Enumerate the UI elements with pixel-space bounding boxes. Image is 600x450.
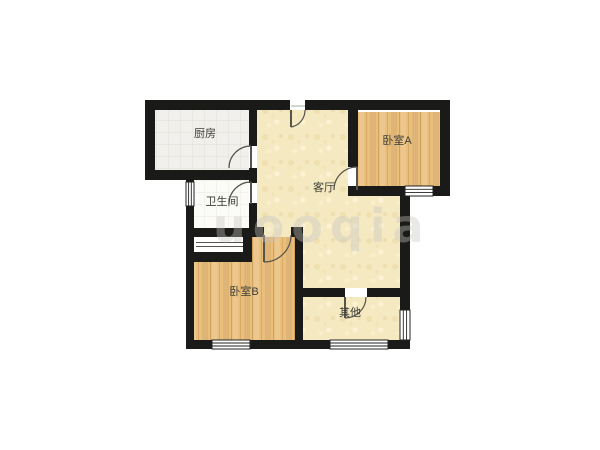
wall-right-corner [400,340,410,349]
wall-bedroom-a-left [348,103,358,167]
wall-top-left [145,100,290,110]
wall-kitchen-bottom [145,170,257,180]
bathroom-window [186,182,194,206]
wall-living-left-a [249,110,257,146]
room-label-kitchen: 厨房 [194,127,216,140]
wall-bedroom-a-bottom [348,186,450,196]
room-kitchen-floor [155,110,249,170]
watermark-text: uooqia [213,199,431,253]
wall-divider-a [300,288,345,297]
room-label-other: 其他 [339,306,361,319]
room-label-bedroom-a: 卧室A [382,133,412,147]
room-label-bathroom: 卫生间 [206,194,239,208]
floor-plan: uooqia 厨房 卫生间 客厅 卧室A 卧室B 其他 [0,0,600,450]
wall-kitchen-left [145,100,155,180]
wall-bottom-a [186,340,212,349]
right-side-window [400,310,410,340]
other-room-window [330,340,388,349]
bedroom-a-window [405,186,433,196]
room-label-living: 客厅 [313,180,335,194]
wall-bedroom-a-right [440,100,450,196]
bedroom-b-window [212,340,250,349]
room-bedroom-a-floor [358,112,440,186]
wall-living-left-b [249,168,257,183]
floor-plan-page: uooqia 厨房 卫生间 客厅 卧室A 卧室B 其他 [0,0,600,450]
wall-bottom-b [250,340,330,349]
wall-bedroom-b-top [186,252,252,262]
wall-top-right [305,100,450,110]
room-label-bedroom-b: 卧室B [229,284,258,298]
